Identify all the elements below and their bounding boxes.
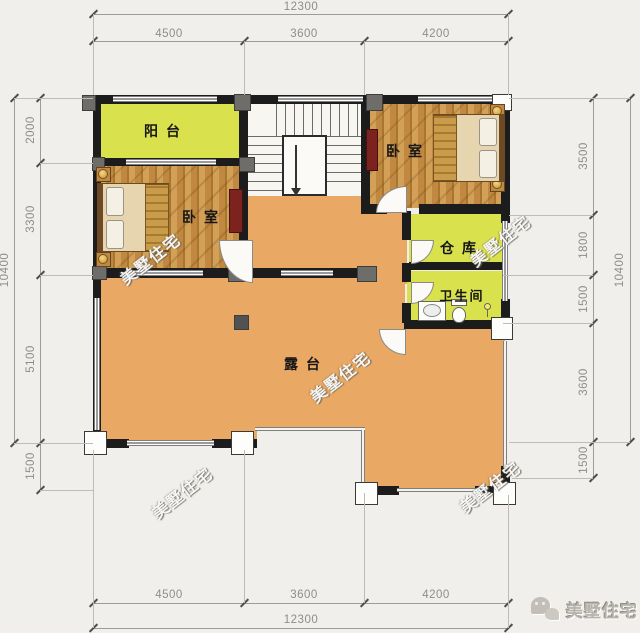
dim-extension-line (509, 442, 630, 443)
bed-headboard (97, 183, 103, 252)
dim-line (93, 603, 509, 604)
dim-value: 1800 (578, 231, 590, 259)
dim-extension-line (503, 323, 593, 324)
window-stair-top (278, 96, 363, 102)
wall-balcony-right (239, 102, 248, 162)
window-balcony-door (126, 159, 216, 165)
dim-value-total-bottom: 12300 (284, 614, 318, 626)
dim-extension-line (93, 450, 94, 628)
wall-bottom-right-a (375, 486, 399, 495)
dim-value: 2000 (25, 116, 37, 144)
dresser (229, 189, 243, 233)
window-terrace-southwest (127, 440, 214, 446)
dim-line (93, 14, 509, 15)
stair-treads-top (276, 104, 360, 137)
dim-line (630, 98, 631, 442)
floor-drain-icon (484, 303, 491, 310)
dim-extension-line (509, 215, 593, 216)
dim-extension-line (512, 478, 593, 479)
dim-value: 1500 (578, 446, 590, 474)
room-label-bedroom-right: 卧室 (386, 141, 430, 161)
wall-storage-west-a (402, 211, 411, 240)
dim-line (14, 98, 15, 443)
dim-value-total-top: 12300 (284, 1, 318, 13)
dim-extension-line (509, 98, 630, 99)
toilet-bowl (452, 307, 466, 323)
stair-treads-right (327, 136, 363, 188)
column-top-mid2 (366, 94, 383, 111)
dim-extension-line (14, 98, 93, 99)
bed-footboard (433, 115, 457, 181)
dim-value-total-right: 10400 (614, 253, 626, 287)
room-label-bathroom: 卫生间 (439, 286, 484, 305)
dim-value: 4500 (155, 589, 183, 601)
floor-plan-canvas: 阳台 卧室 卧室 仓库 卫生间 露台 美墅住宅 美墅住宅 美墅住宅 美墅住宅 美… (0, 0, 640, 633)
railing-terrace-east (503, 341, 507, 468)
dim-extension-line (364, 493, 365, 603)
dim-value: 3600 (290, 589, 318, 601)
watermark: 美墅住宅 (146, 460, 218, 523)
dim-extension-line (508, 495, 509, 628)
window-terrace-west (94, 298, 100, 430)
dim-line (40, 98, 41, 490)
railing-terrace-middle-vertical (361, 430, 365, 488)
column-left-mid2 (92, 266, 107, 280)
column-top-mid1 (234, 94, 251, 111)
dim-extension-line (40, 163, 93, 164)
dim-value: 4500 (155, 28, 183, 40)
column-terrace-free (234, 315, 249, 330)
dim-value: 5100 (25, 345, 37, 373)
brand-logo: 美墅住宅 (531, 596, 638, 622)
stair-direction-line (295, 145, 297, 188)
wall-bedroom-right-bottom-b (419, 204, 509, 214)
dim-extension-line (93, 14, 94, 95)
room-label-balcony: 阳台 (144, 121, 188, 141)
stair-arrow-icon (291, 188, 301, 196)
dresser (366, 129, 378, 171)
dim-extension-line (14, 443, 93, 444)
pillow (479, 118, 497, 146)
dim-value: 3600 (290, 28, 318, 40)
room-label-bedroom-left: 卧室 (182, 207, 226, 227)
dim-value: 3500 (578, 142, 590, 170)
dim-value: 4200 (422, 589, 450, 601)
column-mid-wall2 (357, 266, 377, 282)
room-label-terrace: 露台 (284, 354, 328, 374)
column-bottom-mid-ornate (355, 482, 378, 505)
dim-value: 1500 (578, 285, 590, 313)
dim-extension-line (508, 14, 509, 95)
dim-value: 1500 (25, 452, 37, 480)
window-bedroom-right-top (418, 96, 500, 102)
dim-extension-line (244, 450, 245, 603)
column-bottom-left2 (231, 431, 254, 455)
dim-value: 4200 (422, 28, 450, 40)
pillow (106, 187, 124, 216)
dim-extension-line (503, 275, 593, 276)
dim-extension-line (40, 275, 93, 276)
dim-extension-line (244, 41, 245, 95)
dim-line (93, 628, 509, 629)
brand-logo-text: 美墅住宅 (566, 597, 638, 622)
dim-line (93, 41, 509, 42)
dim-value: 3300 (25, 205, 37, 233)
window-balcony-top (113, 96, 217, 102)
dim-extension-line (364, 41, 365, 95)
railing-terrace-middle (255, 427, 365, 431)
dim-value: 3600 (578, 368, 590, 396)
dim-extension-line (40, 490, 93, 491)
chat-bubbles-icon (531, 596, 561, 622)
pillow (479, 150, 497, 178)
window-hall-south (281, 270, 333, 276)
column-right-mid-ornate (491, 317, 513, 340)
stair-landing (282, 135, 327, 196)
sink-basin (423, 304, 441, 317)
lamp-icon (98, 169, 108, 179)
terrace-floor-right (362, 328, 505, 491)
lamp-icon (98, 254, 108, 264)
bed-headboard (499, 114, 505, 182)
column-balcony-corner (239, 157, 255, 172)
dim-value-total-left: 10400 (0, 253, 11, 287)
floor-drain-stem (487, 310, 488, 317)
dim-line (593, 98, 594, 478)
pillow (106, 220, 124, 249)
